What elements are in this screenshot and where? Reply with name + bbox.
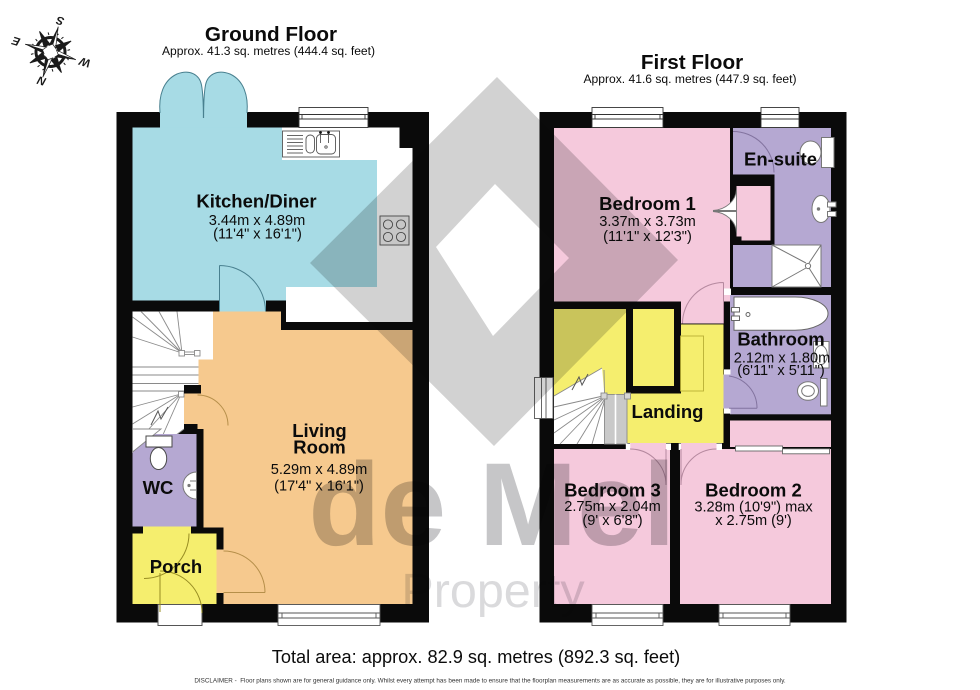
- svg-text:Property: Property: [401, 564, 585, 618]
- svg-text:de Mel: de Mel: [308, 439, 675, 571]
- svg-text:Kitchen/Diner: Kitchen/Diner: [196, 191, 316, 212]
- svg-text:Landing: Landing: [632, 401, 704, 422]
- svg-text:Total area: approx. 82.9 sq. m: Total area: approx. 82.9 sq. metres (892…: [272, 647, 680, 667]
- svg-text:x 2.75m (9'): x 2.75m (9'): [715, 513, 792, 529]
- svg-text:First Floor: First Floor: [641, 51, 743, 74]
- svg-text:En-suite: En-suite: [744, 149, 817, 170]
- svg-text:DISCLAIMER - Floor plans show: DISCLAIMER - Floor plans shown are for g…: [194, 678, 786, 685]
- svg-text:Bedroom 2: Bedroom 2: [705, 480, 802, 501]
- svg-text:Ground Floor: Ground Floor: [205, 23, 337, 46]
- svg-text:(11'4" x 16'1"): (11'4" x 16'1"): [213, 227, 302, 243]
- svg-text:Approx. 41.3 sq. metres (444.4: Approx. 41.3 sq. metres (444.4 sq. feet): [162, 44, 375, 58]
- svg-text:Bathroom: Bathroom: [737, 329, 824, 350]
- svg-text:(6'11" x 5'11"): (6'11" x 5'11"): [737, 363, 825, 379]
- svg-text:Approx. 41.6 sq. metres (447.9: Approx. 41.6 sq. metres (447.9 sq. feet): [583, 72, 796, 86]
- svg-text:Porch: Porch: [150, 556, 202, 577]
- svg-text:WC: WC: [143, 477, 174, 498]
